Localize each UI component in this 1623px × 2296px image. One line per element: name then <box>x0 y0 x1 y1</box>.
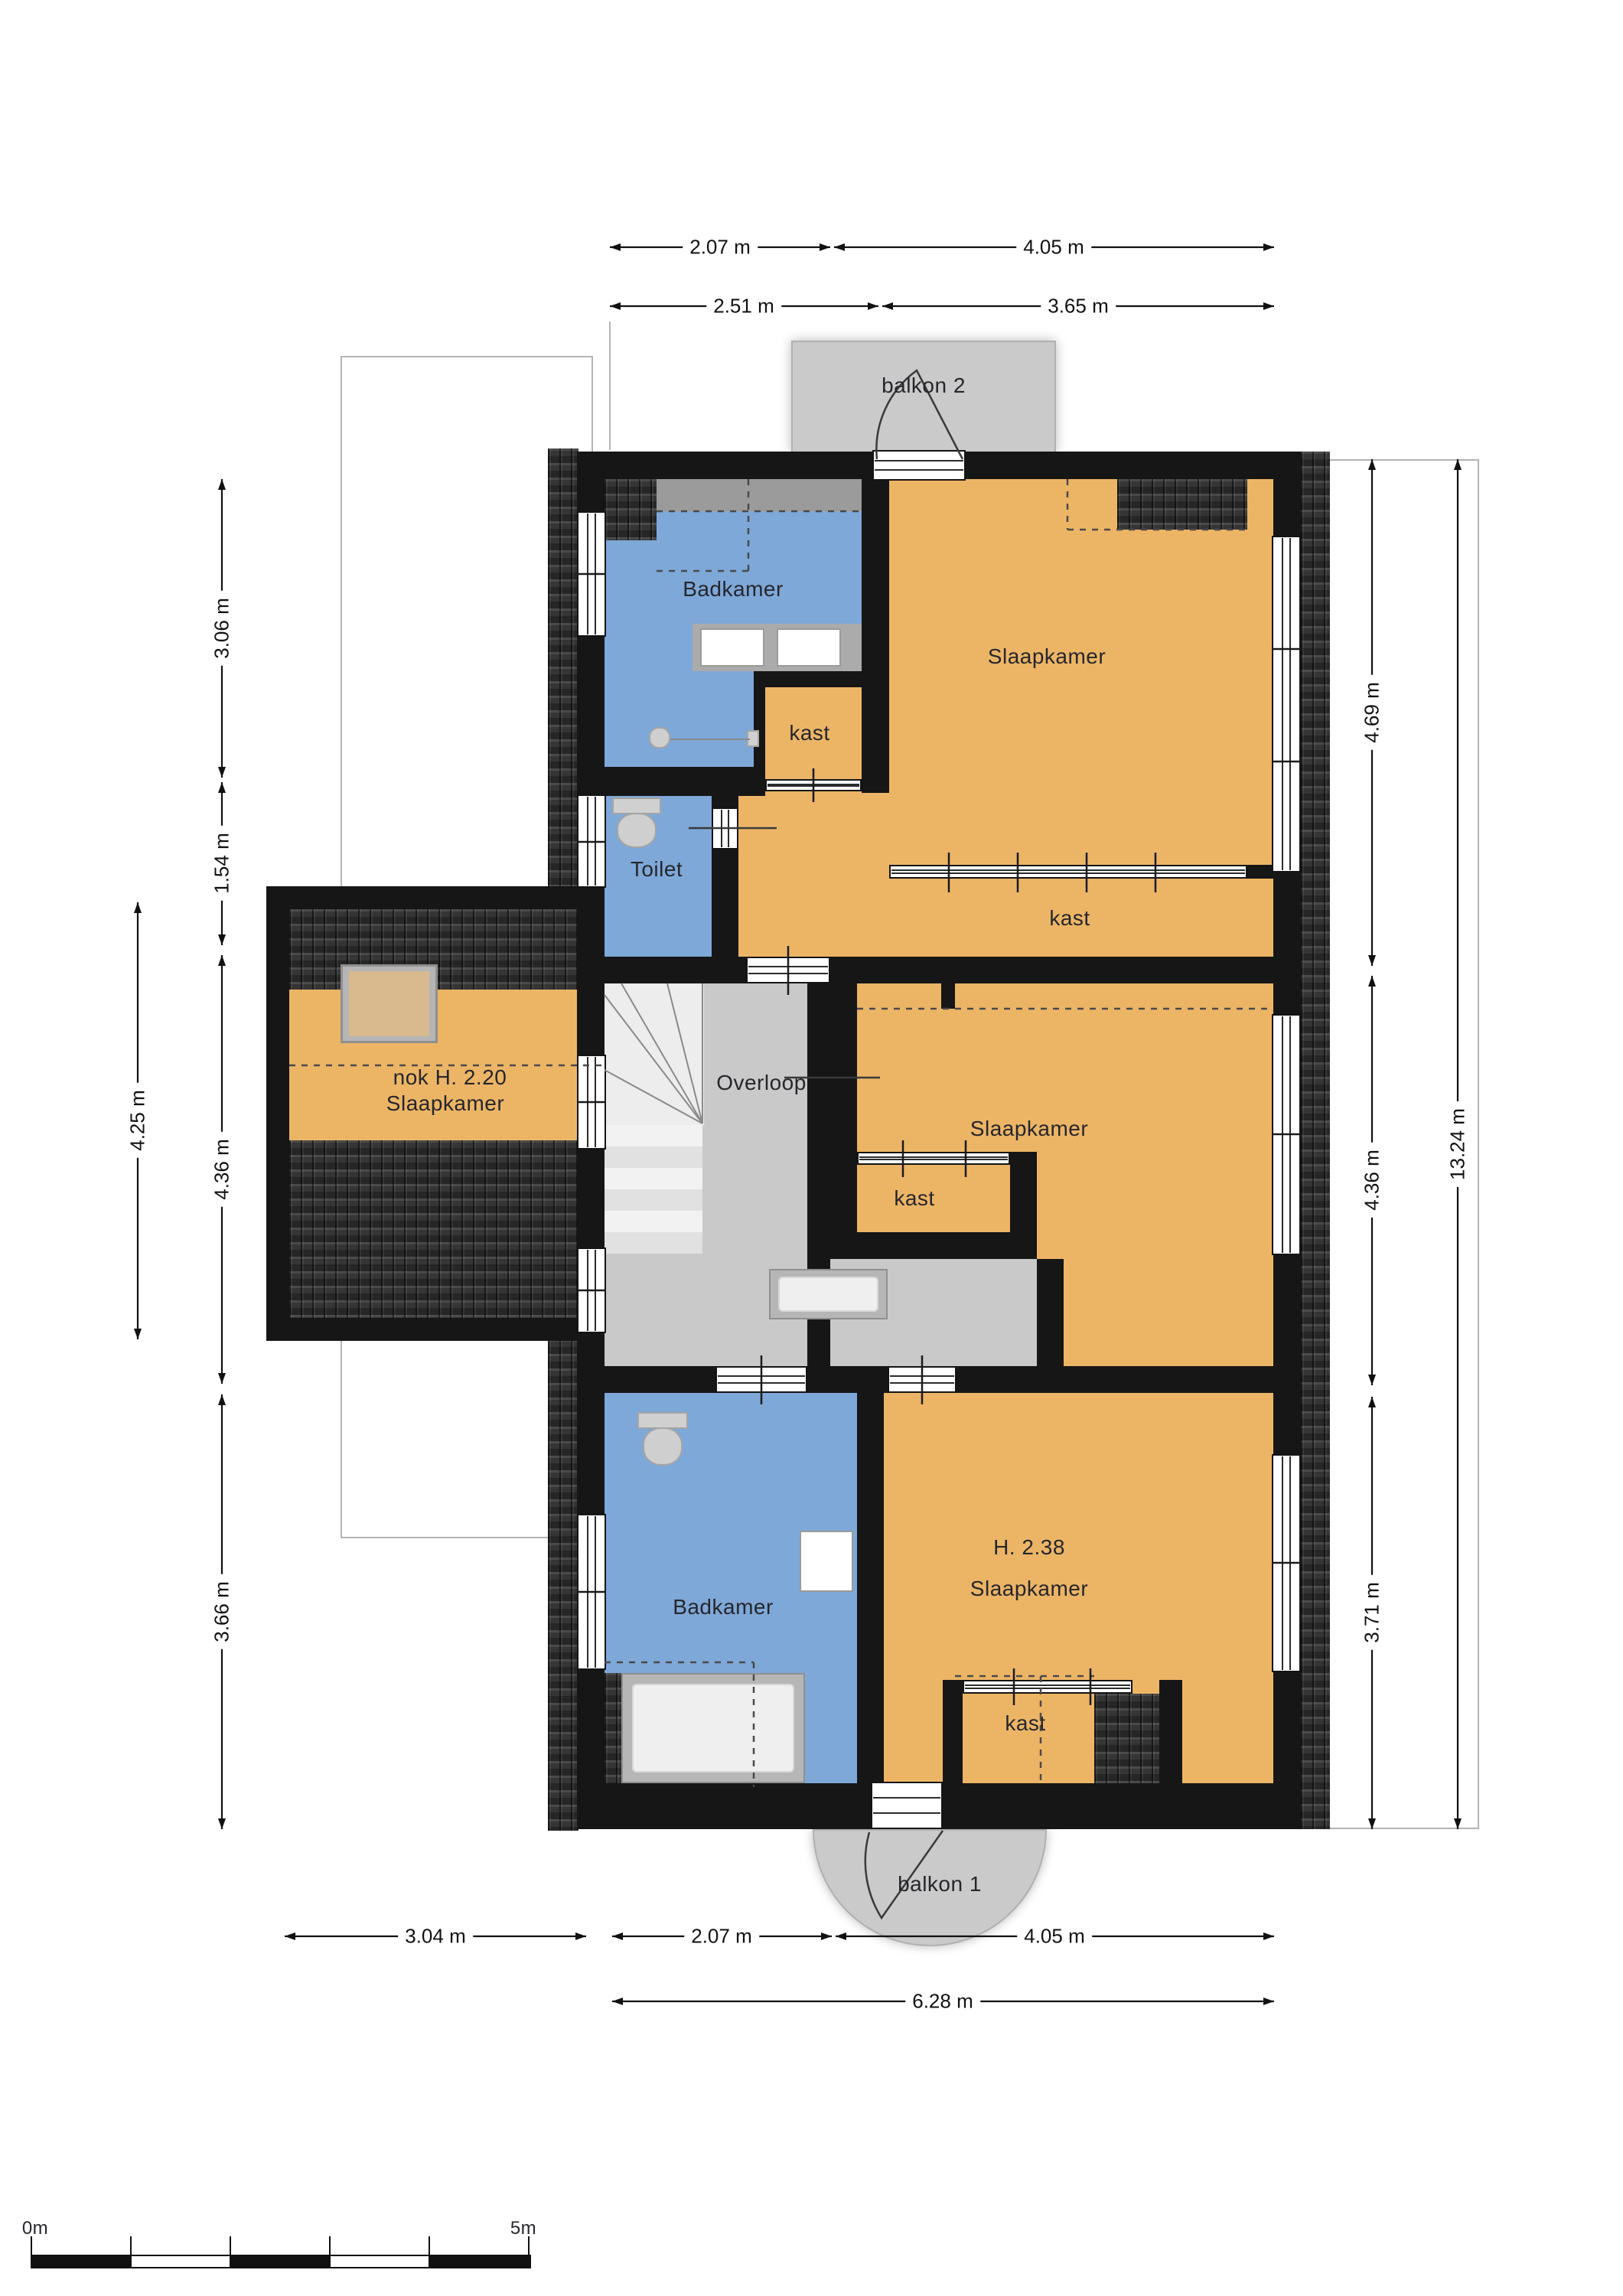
stairs-fan-1 <box>605 995 702 1124</box>
room-label: Slaapkamer <box>988 644 1106 669</box>
floorplan-canvas: balkon 2BadkamerkastSlaapkamerToiletkast… <box>0 0 1623 2296</box>
dimension-label: 3.66 m <box>210 1574 234 1649</box>
room-label: Badkamer <box>673 1595 774 1619</box>
room-label: kast <box>1005 1711 1045 1736</box>
room-label: Overloop <box>716 1071 807 1095</box>
room-label: balkon 2 <box>882 373 966 398</box>
dimension-label: 4.69 m <box>1361 675 1384 750</box>
room-label: balkon 1 <box>898 1872 982 1896</box>
dimension-label: 3.04 m <box>398 1925 473 1949</box>
scalebar-tick <box>230 2236 231 2255</box>
scalebar-segment <box>130 2255 233 2268</box>
scalebar-segment <box>429 2255 531 2268</box>
room-label: nok H. 2.20 <box>393 1065 507 1090</box>
dimension-label: 4.36 m <box>1361 1143 1384 1218</box>
stairs-fan-3 <box>667 983 702 1124</box>
room-label: H. 2.38 <box>993 1535 1065 1560</box>
dimension-label: 2.51 m <box>706 295 781 318</box>
dimension-label: 4.05 m <box>1017 1925 1092 1949</box>
room-label: Slaapkamer <box>970 1117 1088 1141</box>
room-label: Toilet <box>631 857 683 882</box>
dimension-label: 13.24 m <box>1446 1101 1470 1187</box>
stairs-fan-2 <box>621 983 702 1124</box>
scalebar-tick <box>130 2236 132 2255</box>
room-label: kast <box>1049 906 1090 931</box>
scalebar-tick <box>329 2236 331 2255</box>
dimension-label: 3.71 m <box>1361 1575 1384 1650</box>
scalebar-segment <box>230 2255 332 2268</box>
room-label: Slaapkamer <box>970 1577 1088 1601</box>
room-label: kast <box>894 1186 934 1211</box>
scalebar-segment <box>329 2255 432 2268</box>
scalebar-label: 5m <box>510 2218 536 2239</box>
dimension-label: 6.28 m <box>905 1990 980 2014</box>
room-label: Badkamer <box>683 577 784 602</box>
dimension-label: 3.06 m <box>210 591 234 666</box>
scalebar-tick <box>429 2236 430 2255</box>
dimension-label: 4.05 m <box>1016 236 1091 259</box>
dimension-label: 4.36 m <box>210 1132 234 1207</box>
dimension-label: 2.07 m <box>683 236 758 259</box>
dimension-label: 1.54 m <box>210 826 234 901</box>
room-label: Slaapkamer <box>386 1091 504 1116</box>
scalebar-segment <box>31 2255 133 2268</box>
dimension-label: 2.07 m <box>684 1925 759 1949</box>
room-label: kast <box>789 721 829 745</box>
dimension-label: 4.25 m <box>126 1083 150 1158</box>
dimension-label: 3.65 m <box>1041 295 1116 318</box>
scalebar-label: 0m <box>22 2218 48 2239</box>
